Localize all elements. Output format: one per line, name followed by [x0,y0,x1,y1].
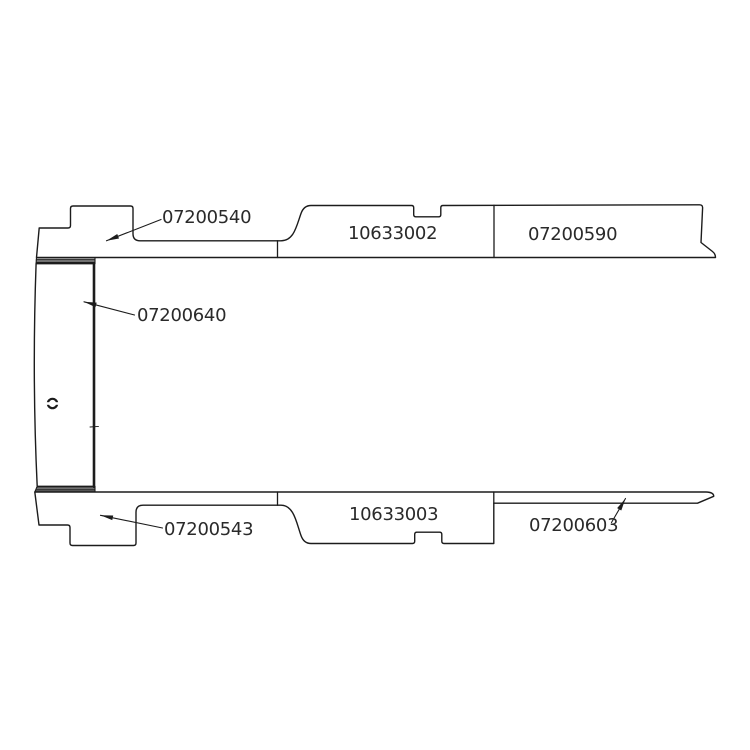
part-label-10633002: 10633002 [348,224,437,243]
part-label-07200590: 07200590 [528,225,617,244]
part-label-10633003: 10633003 [349,505,438,524]
hinge-band-bottom [35,486,95,492]
leader-07200543 [101,515,163,528]
diagram-linework [0,0,750,750]
door-panel [34,258,98,493]
part-label-07200540: 07200540 [162,208,251,227]
door-panel-left-edge [34,264,37,487]
door-panel-tick [90,426,99,427]
fastener-icon [45,399,60,408]
leader-07200640 [84,302,135,315]
leader-lines [84,220,626,529]
hinge-band-top [36,258,95,264]
part-label-07200640: 07200640 [137,306,226,325]
parts-diagram-canvas: 07200540 10633002 07200590 07200640 0720… [0,0,750,750]
part-label-07200543: 07200543 [164,520,253,539]
part-label-07200603: 07200603 [529,516,618,535]
